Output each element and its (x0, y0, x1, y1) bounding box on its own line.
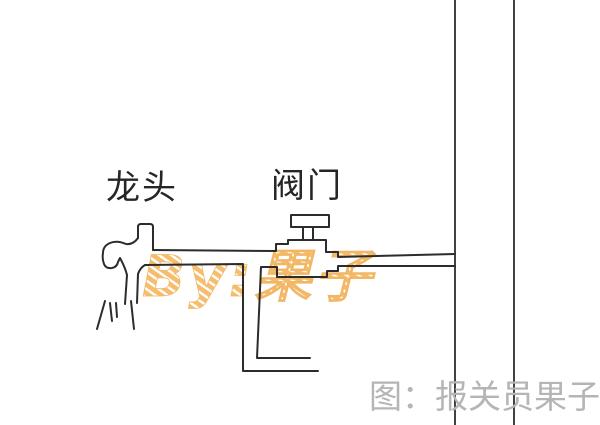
plumbing-line-art: By:果子 (0, 0, 600, 425)
diagram-canvas: By:果子 龙头 阀门 图： (0, 0, 600, 425)
image-credit-caption: 图：报关员果子 (369, 380, 600, 415)
valve-label: 阀门 (271, 170, 343, 204)
spray-line-3 (116, 303, 117, 317)
spray-line-2 (110, 303, 112, 321)
line-art-group (97, 0, 514, 425)
spray-line-4 (131, 301, 134, 329)
valve-handle (291, 215, 329, 227)
spray-line-1 (97, 301, 105, 329)
valve-stem (303, 227, 313, 240)
faucet-label: 龙头 (106, 172, 178, 206)
